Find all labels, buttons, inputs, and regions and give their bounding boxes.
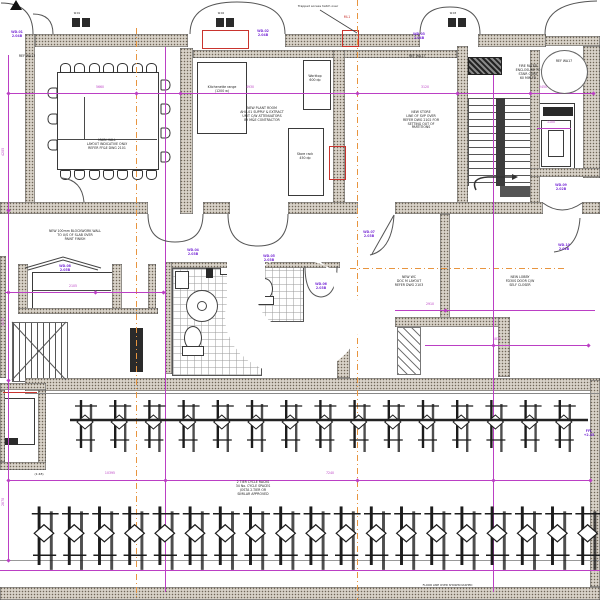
door-tag: WD.05 2.03B: [256, 255, 282, 263]
dim-label: 4930: [240, 86, 260, 90]
dim-label: 3470: [2, 312, 6, 332]
bottom-note: FLOOR LINE OVER SHOWN DASHED: [390, 584, 505, 587]
note-text: Store rack 450 dp: [287, 153, 323, 161]
note-text: MAIN HALL LAYOUT INDICATIVE ONLY REFER F…: [62, 139, 152, 151]
watermark-blob: [0, 0, 600, 600]
dim-label: 2450: [533, 86, 553, 90]
door-tag: WD.07 2.03B: [356, 231, 382, 239]
ref-bubble-label: REF WA17: [548, 60, 580, 64]
dim-label: 2105: [63, 285, 83, 289]
door-tag: WD.10 2.02B: [551, 244, 577, 252]
note-text: NEW WC DOC M LAYOUT REFER DWG 2103: [382, 276, 436, 288]
door-tag: WD.02 2.04B: [250, 30, 276, 38]
dim-label: 1830: [487, 338, 507, 342]
dim-label: 10395: [100, 472, 120, 476]
scale-note: (1:48): [28, 473, 50, 477]
floor-plan-sheet: REF WA17 REF WA17 REF WA17 Trapped acces…: [0, 0, 600, 600]
door-tag: WD.09 2.02B: [548, 184, 574, 192]
note-text: FIRE RATED ENCLOSURE TO STAIR CORE 60 MI…: [503, 65, 553, 80]
red-tag: ML1: [340, 16, 354, 20]
dim-label: 1100: [541, 121, 561, 125]
door-tag: WD.08 2.05B: [52, 265, 78, 273]
window-tag: W.01: [68, 12, 86, 15]
door-tag: WD.03 2.04B: [406, 33, 432, 41]
dim-label: 4205: [2, 142, 6, 162]
dim-label: 2870: [2, 492, 6, 512]
ref-label: REF WA17: [402, 55, 432, 59]
note-text: NEW LOBBY FD30S DOOR C/W SELF CLOSER: [494, 276, 546, 288]
door-tag: FFL +2.35: [576, 430, 600, 438]
dim-label: 7240: [320, 472, 340, 476]
ref-label: REF WA17: [12, 55, 42, 59]
note-text: 2 TIER CYCLE RACKS 34 No. CYCLE SPACES J…: [220, 481, 286, 496]
door-tag: WD.01 2.04B: [4, 31, 30, 39]
note-text: NEW PLANT ROOM AHU-01 SUPPLY & EXTRACT U…: [212, 107, 312, 122]
window-tag: W.02: [212, 12, 230, 15]
dim-label: 2910: [420, 303, 440, 307]
window-tag: W.03: [444, 12, 462, 15]
note-text: NEW 100mm BLOCKWORK WALL TO U/S OF SLAB …: [28, 230, 122, 242]
door-tag: WD.04 2.03B: [180, 249, 206, 257]
note-text: Worktop 600 dp: [299, 75, 331, 83]
dim-label: 3120: [415, 86, 435, 90]
section-marker-icon: [10, 0, 22, 10]
door-tag: WD.06 2.03B: [308, 283, 334, 291]
note-text: NEW STORE LINE OF SVP OVER REFER DWG 210…: [394, 111, 448, 130]
dim-label: 5660: [90, 86, 110, 90]
leader-note: Trapped access hatch over: [282, 5, 354, 9]
note-text: Kitchenette range (1200 w): [198, 86, 246, 94]
